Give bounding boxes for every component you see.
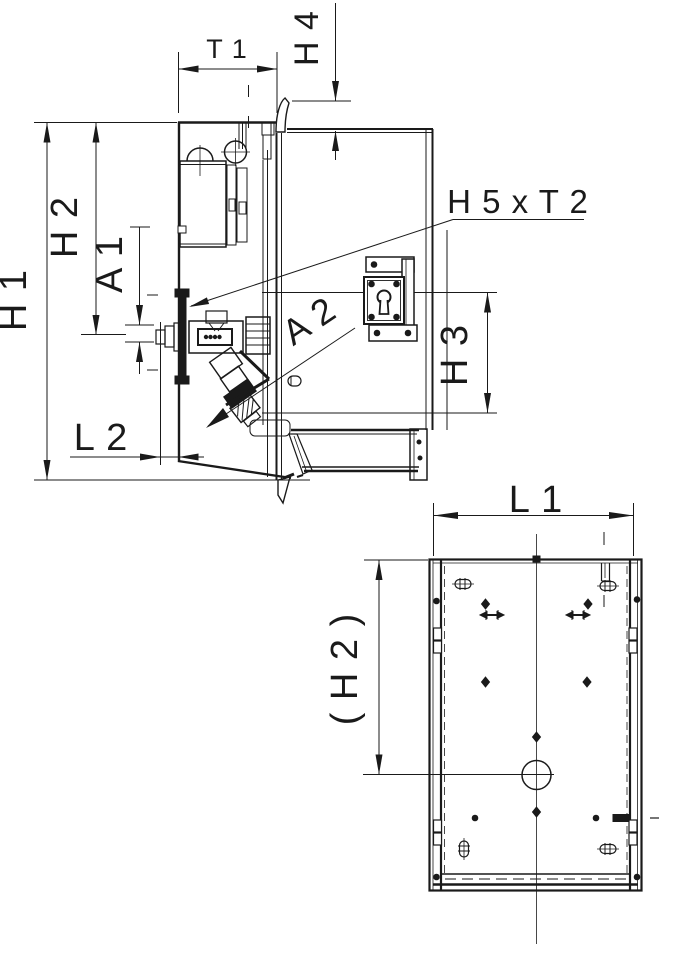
door-panel [262, 98, 447, 430]
dim-label-t1: T 1 [206, 34, 248, 64]
output-tray [278, 429, 427, 503]
dim-label-h5xt2: H 5 x T 2 [447, 183, 589, 220]
mount-bracket [246, 317, 270, 354]
coin-mechanism [147, 289, 301, 465]
dim-label-h4: H 4 [288, 10, 326, 66]
angle-arrow [206, 408, 229, 428]
dim-label-l1: L 1 [509, 479, 563, 521]
dim-label-h2: H 2 [44, 196, 86, 258]
dim-label-l2: L 2 [74, 417, 128, 459]
mounting-hole [458, 838, 470, 860]
door-bottom-fin [278, 477, 290, 503]
mounting-hole [452, 578, 474, 590]
dim-a1: A 1 [89, 227, 154, 374]
dim-h2: H 2 [44, 123, 126, 336]
coin-box [178, 138, 250, 247]
lock-assembly [364, 257, 417, 341]
dim-t1: T 1 [179, 34, 278, 113]
small-slot [288, 376, 301, 386]
dim-h2-ref: ( H 2 ) [324, 560, 554, 775]
dim-label-h2-ref: ( H 2 ) [324, 613, 366, 726]
mounting-hole [597, 580, 619, 592]
mount-flange-top [175, 289, 189, 297]
mounting-hole [597, 843, 619, 855]
dim-label-h1: H 1 [0, 269, 35, 331]
mount-flange-bottom [175, 376, 189, 384]
slot-arrow [566, 610, 590, 620]
rear-view [430, 532, 660, 944]
door-hinge-hook [276, 98, 289, 132]
rear-outline [430, 560, 642, 891]
dim-label-h3: H 3 [434, 324, 476, 386]
top-coin-slot [239, 85, 249, 149]
top-right-bracket [602, 532, 610, 607]
dimensions: H 1 H 2 A 1 L 2 [0, 3, 634, 775]
technical-drawing: H 1 H 2 A 1 L 2 [0, 0, 680, 955]
leader-arrow [189, 297, 209, 307]
latch-block [613, 815, 630, 822]
drawing-canvas: H 1 H 2 A 1 L 2 [0, 0, 680, 955]
dim-h3: H 3 [434, 293, 491, 414]
slot-arrow [480, 610, 504, 620]
dim-label-a1: A 1 [89, 235, 131, 293]
dim-h4: H 4 [288, 3, 351, 160]
dim-a2: A 2 [206, 288, 355, 428]
cabinet-outline [178, 122, 291, 480]
dim-l2: L 2 [70, 417, 204, 461]
dim-label-a2: A 2 [275, 288, 344, 353]
